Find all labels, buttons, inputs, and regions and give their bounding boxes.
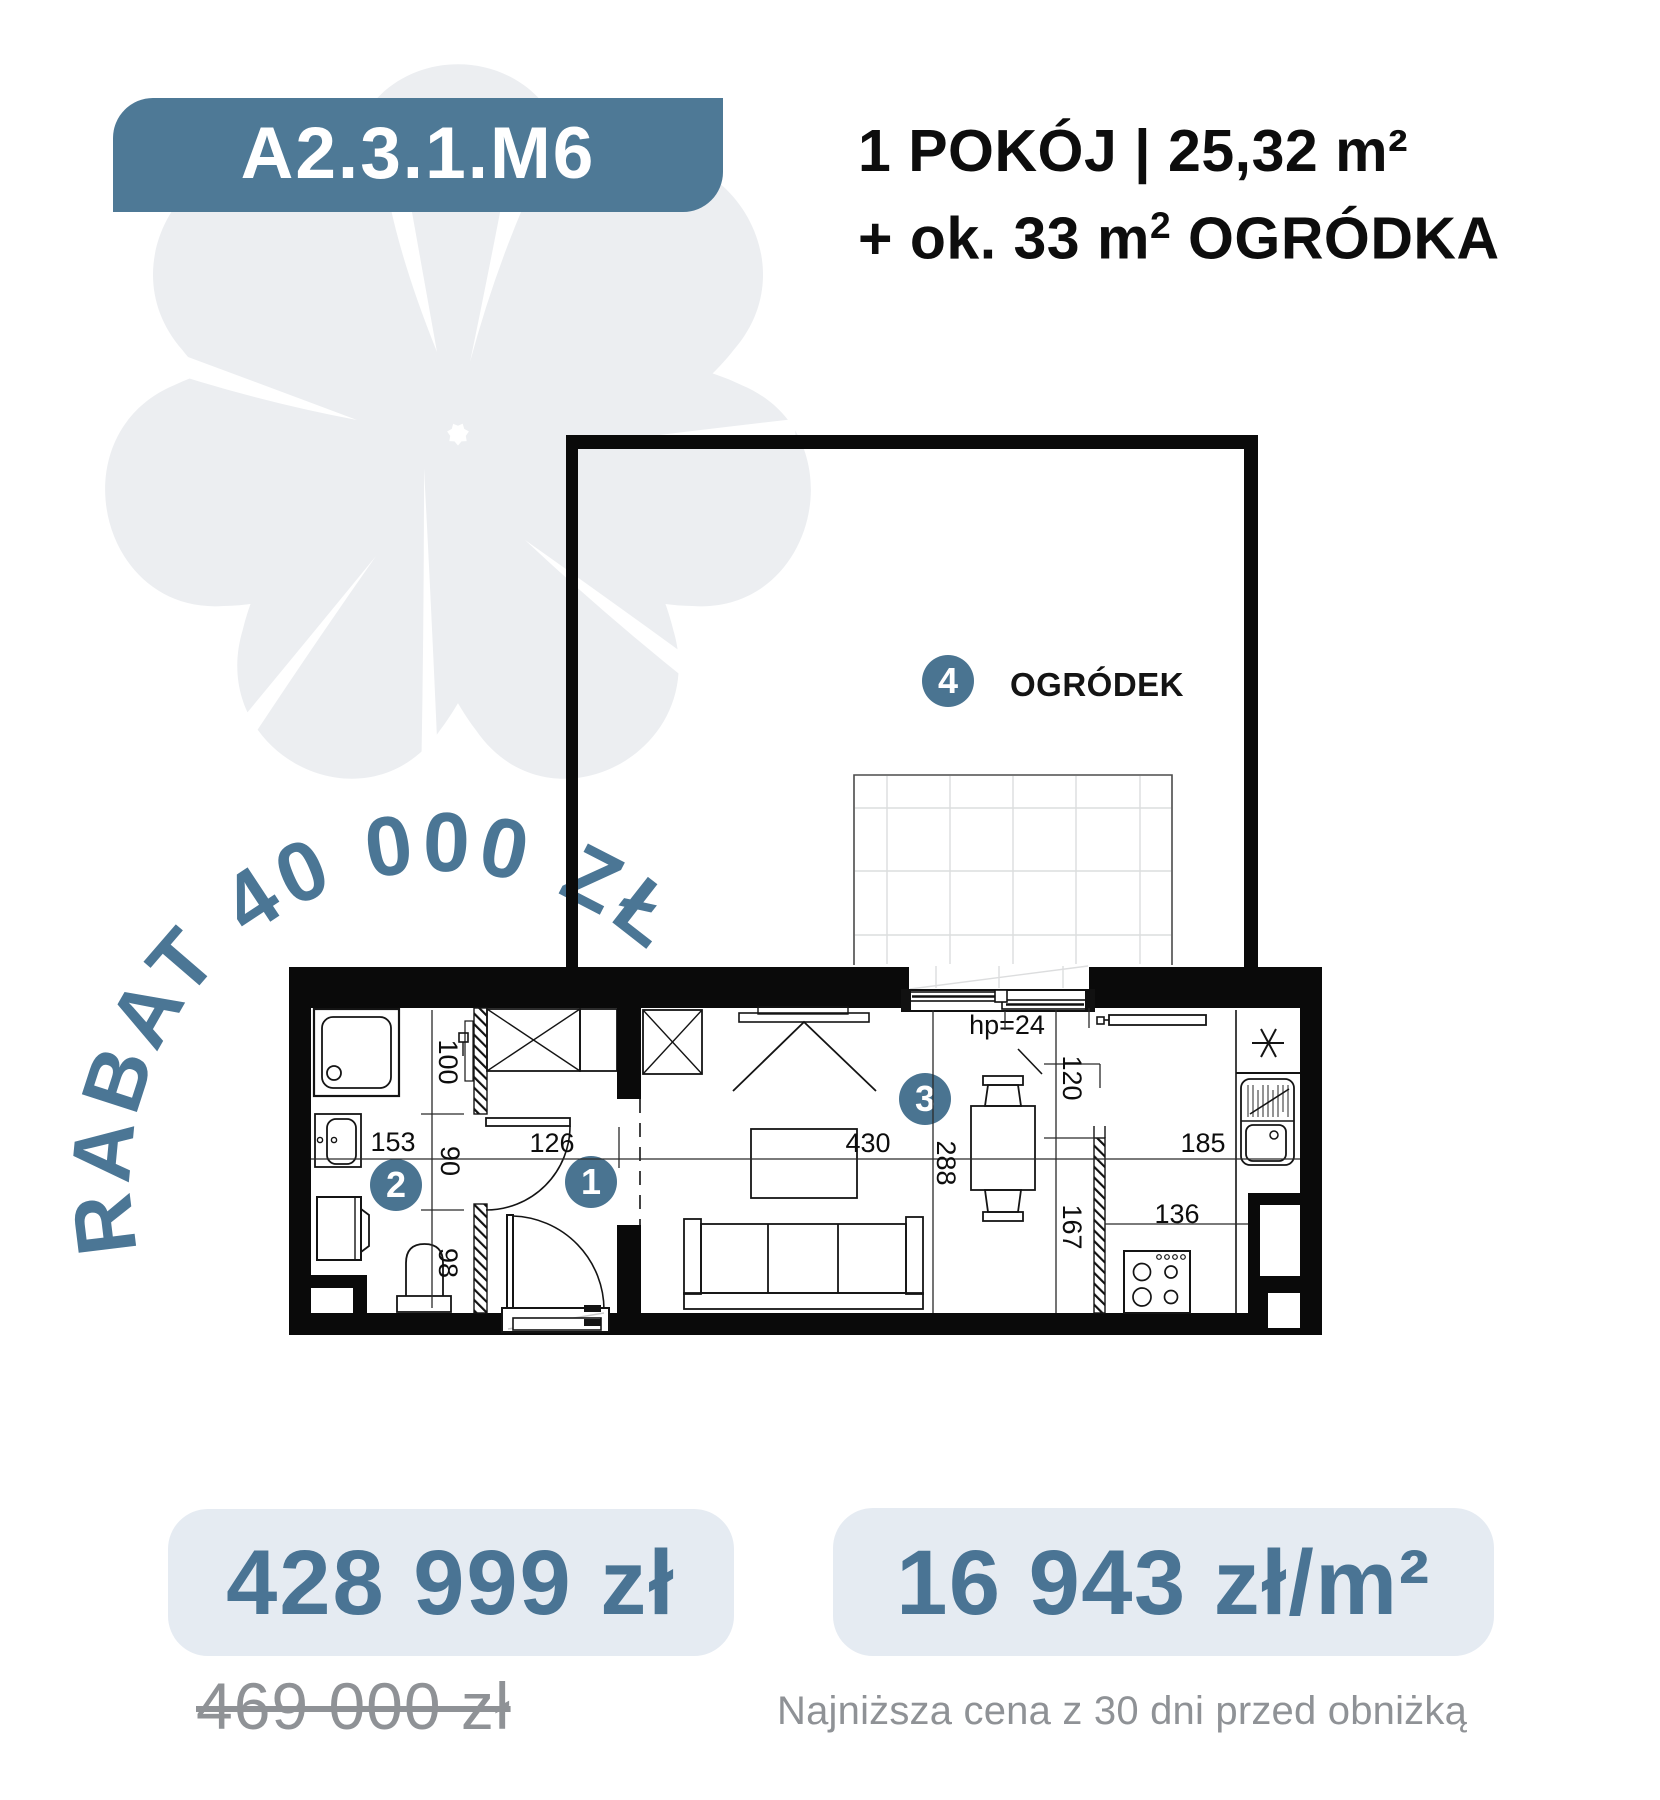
svg-text:90: 90	[435, 1146, 465, 1176]
svg-text:288: 288	[931, 1140, 961, 1185]
svg-text:98: 98	[433, 1248, 463, 1278]
svg-text:185: 185	[1180, 1128, 1225, 1158]
svg-text:2: 2	[386, 1164, 406, 1205]
svg-text:120: 120	[1057, 1055, 1087, 1100]
svg-text:167: 167	[1057, 1204, 1087, 1249]
svg-text:4: 4	[938, 660, 958, 701]
svg-text:OGRÓDEK: OGRÓDEK	[1010, 666, 1184, 703]
svg-text:430: 430	[845, 1128, 890, 1158]
svg-text:136: 136	[1154, 1199, 1199, 1229]
svg-text:hp=24: hp=24	[969, 1010, 1045, 1040]
svg-text:1: 1	[581, 1161, 601, 1202]
svg-text:3: 3	[915, 1078, 935, 1119]
svg-text:153: 153	[370, 1127, 415, 1157]
svg-text:126: 126	[529, 1128, 574, 1158]
svg-text:100: 100	[433, 1039, 463, 1084]
